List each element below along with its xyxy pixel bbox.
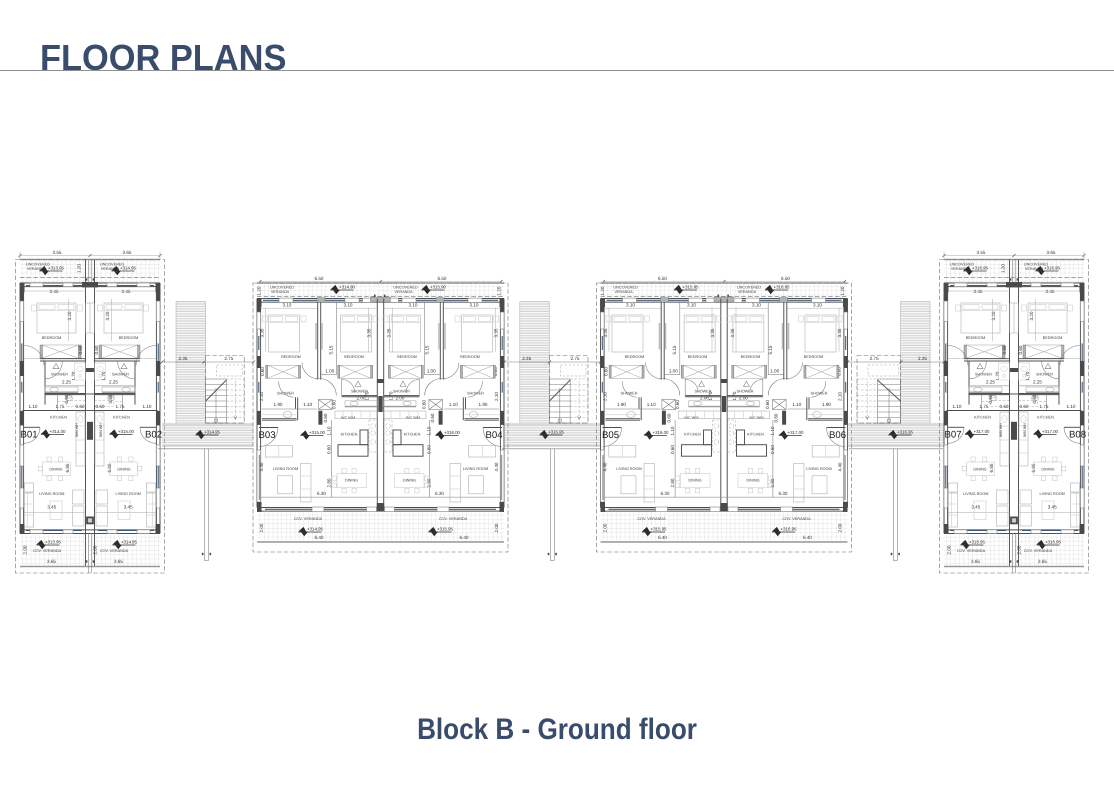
svg-text:2.75: 2.75: [224, 356, 233, 361]
svg-text:3.10: 3.10: [626, 303, 635, 308]
svg-text:COV. VERANDA: COV. VERANDA: [439, 517, 468, 521]
svg-text:3.45: 3.45: [974, 289, 983, 294]
svg-text:+315.00: +315.00: [118, 429, 135, 434]
svg-text:0.60: 0.60: [675, 400, 680, 409]
svg-text:3.35: 3.35: [387, 328, 392, 337]
svg-text:BEDROOM: BEDROOM: [1043, 336, 1063, 340]
svg-text:2.00: 2.00: [947, 545, 952, 554]
svg-text:+316.95: +316.95: [897, 430, 914, 435]
svg-text:1.00: 1.00: [427, 369, 436, 374]
svg-text:3.10: 3.10: [283, 303, 292, 308]
svg-text:1.20: 1.20: [257, 286, 262, 295]
svg-text:B06: B06: [829, 430, 846, 441]
svg-text:5.15: 5.15: [672, 345, 677, 354]
svg-text:3.65: 3.65: [1047, 250, 1056, 255]
svg-text:3.35: 3.35: [730, 328, 735, 337]
svg-text:0.60: 0.60: [430, 413, 435, 422]
svg-text:WM WH: WM WH: [1023, 423, 1027, 437]
svg-text:6.40: 6.40: [315, 535, 324, 540]
svg-text:0.60: 0.60: [427, 445, 432, 454]
svg-text:+314.95: +314.95: [204, 430, 221, 435]
svg-text:+314.95: +314.95: [120, 266, 137, 271]
svg-text:1.20: 1.20: [840, 286, 845, 295]
svg-text:3.65: 3.65: [1038, 559, 1047, 564]
svg-text:2.10: 2.10: [494, 392, 499, 401]
svg-text:1.90: 1.90: [479, 402, 488, 407]
svg-text:COV. VERANDA: COV. VERANDA: [294, 517, 323, 521]
svg-text:SHOWER: SHOWER: [810, 392, 827, 396]
svg-text:+314.00: +314.00: [50, 429, 67, 434]
svg-text:DINING: DINING: [746, 479, 759, 483]
svg-text:6.85: 6.85: [989, 463, 994, 472]
svg-text:0.60: 0.60: [64, 394, 69, 403]
svg-text:0.60: 0.60: [327, 445, 332, 454]
svg-text:DINING: DINING: [688, 479, 701, 483]
svg-text:+315.00: +315.00: [309, 430, 326, 435]
svg-text:LIVING ROOM: LIVING ROOM: [273, 467, 298, 471]
svg-text:0.60: 0.60: [332, 400, 337, 409]
svg-text:0.60: 0.60: [108, 394, 113, 403]
svg-text:2.10: 2.10: [838, 392, 843, 401]
svg-text:BEDROOM: BEDROOM: [688, 355, 708, 359]
svg-text:2.35: 2.35: [179, 356, 188, 361]
svg-text:+315.90: +315.90: [430, 285, 447, 290]
svg-text:2.35: 2.35: [522, 356, 531, 361]
svg-text:+317.00: +317.00: [1042, 429, 1059, 434]
svg-text:+317.00: +317.00: [788, 430, 805, 435]
svg-text:3.20: 3.20: [991, 311, 996, 320]
svg-text:B08: B08: [1069, 430, 1086, 441]
svg-text:6.40: 6.40: [658, 535, 667, 540]
svg-text:0.60: 0.60: [667, 413, 672, 422]
svg-text:4.40: 4.40: [838, 462, 843, 471]
svg-text:1.00: 1.00: [325, 369, 334, 374]
svg-text:BEDROOM: BEDROOM: [741, 355, 761, 359]
svg-text:DINING: DINING: [403, 479, 416, 483]
svg-text:6.30: 6.30: [661, 491, 670, 496]
svg-text:3.65: 3.65: [123, 250, 132, 255]
svg-text:3.65: 3.65: [971, 559, 980, 564]
svg-text:1.70: 1.70: [995, 371, 1000, 380]
svg-text:1.70: 1.70: [71, 371, 76, 380]
svg-text:1.00: 1.00: [669, 369, 678, 374]
svg-text:WM WH: WM WH: [999, 423, 1003, 437]
svg-text:3.35: 3.35: [710, 328, 715, 337]
svg-text:KITCHEN: KITCHEN: [404, 433, 421, 437]
svg-text:BEDROOM: BEDROOM: [460, 355, 480, 359]
svg-text:B05: B05: [602, 430, 619, 441]
svg-text:KITCHEN: KITCHEN: [113, 416, 130, 420]
svg-text:0.60: 0.60: [78, 345, 83, 354]
svg-text:3.10: 3.10: [687, 303, 696, 308]
svg-text:LIVING ROOM: LIVING ROOM: [963, 492, 988, 496]
svg-text:3.10: 3.10: [344, 303, 353, 308]
svg-text:BEDROOM: BEDROOM: [804, 355, 824, 359]
svg-text:0.60: 0.60: [422, 400, 427, 409]
svg-text:3.20: 3.20: [67, 311, 72, 320]
svg-text:+316.95: +316.95: [774, 285, 791, 290]
svg-text:6.50: 6.50: [438, 276, 447, 281]
svg-text:+316.00: +316.00: [653, 430, 670, 435]
svg-text:0.60: 0.60: [1000, 404, 1009, 409]
svg-text:B03: B03: [258, 430, 275, 441]
svg-text:COV. VERANDA: COV. VERANDA: [957, 549, 986, 553]
svg-text:2.75: 2.75: [870, 356, 879, 361]
svg-text:VERANDA: VERANDA: [738, 290, 757, 294]
svg-text:0.60: 0.60: [76, 404, 85, 409]
svg-text:SHOWER: SHOWER: [112, 373, 129, 377]
svg-text:UNCOVERED: UNCOVERED: [393, 286, 418, 290]
svg-text:1.10: 1.10: [770, 426, 775, 435]
svg-text:2.80: 2.80: [327, 478, 332, 487]
svg-text:3.35: 3.35: [603, 328, 608, 337]
svg-text:+316.00: +316.00: [444, 430, 461, 435]
svg-text:2.25: 2.25: [986, 380, 995, 385]
svg-text:1.10: 1.10: [1067, 404, 1076, 409]
svg-text:4.40: 4.40: [259, 462, 264, 471]
svg-text:VERANDA: VERANDA: [614, 290, 633, 294]
svg-text:+313.95: +313.95: [45, 540, 62, 545]
svg-text:3.45: 3.45: [124, 505, 133, 510]
svg-text:0.60: 0.60: [260, 367, 265, 376]
svg-text:UNCOVERED: UNCOVERED: [613, 286, 638, 290]
svg-text:6.30: 6.30: [779, 491, 788, 496]
svg-text:KITCHEN: KITCHEN: [974, 416, 991, 420]
svg-text:0.60: 0.60: [770, 445, 775, 454]
svg-text:3.65: 3.65: [47, 559, 56, 564]
svg-text:0.60: 0.60: [765, 400, 770, 409]
svg-text:2.00: 2.00: [23, 545, 28, 554]
svg-text:BEDROOM: BEDROOM: [397, 355, 417, 359]
svg-text:0.60: 0.60: [94, 345, 99, 354]
svg-text:5.15: 5.15: [329, 345, 334, 354]
svg-text:DINING: DINING: [117, 468, 130, 472]
svg-text:+314.95: +314.95: [307, 527, 324, 532]
svg-text:3.45: 3.45: [971, 505, 980, 510]
svg-text:1.10: 1.10: [449, 402, 458, 407]
svg-text:VERANDA: VERANDA: [394, 290, 413, 294]
svg-text:0.60: 0.60: [604, 367, 609, 376]
svg-text:LIVING ROOM: LIVING ROOM: [806, 467, 831, 471]
svg-text:+317.00: +317.00: [974, 429, 991, 434]
svg-text:1.75: 1.75: [980, 404, 989, 409]
svg-text:1.90: 1.90: [274, 402, 283, 407]
svg-text:3.55: 3.55: [977, 250, 986, 255]
svg-text:0.60: 0.60: [1018, 345, 1023, 354]
svg-text:3.55: 3.55: [53, 250, 62, 255]
svg-text:KITCHEN: KITCHEN: [684, 433, 701, 437]
svg-text:DINING: DINING: [1041, 468, 1054, 472]
svg-text:1.10: 1.10: [327, 426, 332, 435]
svg-text:+314.90: +314.90: [339, 285, 356, 290]
svg-text:4.40: 4.40: [494, 462, 499, 471]
svg-text:1.00: 1.00: [770, 369, 779, 374]
svg-text:2.75: 2.75: [571, 356, 580, 361]
svg-text:DINING: DINING: [49, 468, 62, 472]
svg-text:UNCOVERED: UNCOVERED: [270, 286, 295, 290]
svg-text:1.10: 1.10: [792, 402, 801, 407]
svg-text:3.45: 3.45: [50, 289, 59, 294]
svg-text:1.20: 1.20: [600, 286, 605, 295]
svg-text:DINING: DINING: [973, 468, 986, 472]
svg-text:2.25: 2.25: [1033, 380, 1042, 385]
svg-text:SHOWER: SHOWER: [736, 389, 753, 393]
svg-text:1.20: 1.20: [1001, 264, 1006, 273]
svg-text:BEDROOM: BEDROOM: [42, 336, 62, 340]
svg-text:2.00: 2.00: [603, 523, 608, 532]
svg-text:4.40: 4.40: [603, 462, 608, 471]
svg-text:2.35: 2.35: [918, 356, 927, 361]
svg-text:VERANDA: VERANDA: [271, 290, 290, 294]
svg-text:+316.95: +316.95: [1045, 540, 1062, 545]
svg-text:COV. VERANDA: COV. VERANDA: [33, 549, 62, 553]
svg-text:0.60: 0.60: [323, 413, 328, 422]
svg-text:3.65: 3.65: [114, 559, 123, 564]
svg-text:+313.95: +313.95: [48, 266, 65, 271]
svg-text:BEDROOM: BEDROOM: [281, 355, 301, 359]
svg-text:3.35: 3.35: [367, 328, 372, 337]
svg-text:3.10: 3.10: [470, 303, 479, 308]
svg-text:0.60: 0.60: [1032, 394, 1037, 403]
svg-text:+315.95: +315.95: [651, 527, 668, 532]
svg-text:COV. VERANDA: COV. VERANDA: [1024, 549, 1053, 553]
svg-text:2.00: 2.00: [1017, 545, 1022, 554]
svg-text:3.45: 3.45: [47, 505, 56, 510]
svg-text:1.10: 1.10: [303, 402, 312, 407]
svg-text:SHOWER: SHOWER: [393, 389, 410, 393]
svg-text:3.10: 3.10: [409, 303, 418, 308]
svg-text:1.75: 1.75: [116, 404, 125, 409]
svg-text:0.60: 0.60: [988, 394, 993, 403]
svg-text:3.35: 3.35: [494, 328, 499, 337]
svg-text:WM WH: WM WH: [75, 423, 79, 437]
svg-text:3.45: 3.45: [1046, 289, 1055, 294]
svg-text:LIVING ROOM: LIVING ROOM: [39, 492, 64, 496]
svg-text:LIVING ROOM: LIVING ROOM: [463, 467, 488, 471]
svg-text:6.85: 6.85: [65, 463, 70, 472]
svg-text:5.15: 5.15: [768, 345, 773, 354]
svg-text:6.50: 6.50: [315, 276, 324, 281]
svg-text:1.20: 1.20: [497, 286, 502, 295]
svg-text:BEDROOM: BEDROOM: [966, 336, 986, 340]
svg-text:2.00: 2.00: [838, 523, 843, 532]
svg-text:3.35: 3.35: [837, 328, 842, 337]
svg-text:LIVING ROOM: LIVING ROOM: [1040, 492, 1065, 496]
svg-text:LIVING ROOM: LIVING ROOM: [116, 492, 141, 496]
svg-text:LIVING ROOM: LIVING ROOM: [616, 467, 641, 471]
svg-text:KITCHEN: KITCHEN: [50, 416, 67, 420]
svg-text:KITCHEN: KITCHEN: [747, 433, 764, 437]
svg-text:KITCHEN: KITCHEN: [341, 433, 358, 437]
svg-text:+315.95: +315.95: [548, 430, 565, 435]
svg-text:UNCOVERED: UNCOVERED: [950, 263, 975, 267]
svg-text:1.10: 1.10: [143, 404, 152, 409]
svg-text:6.30: 6.30: [435, 491, 444, 496]
svg-text:1.75: 1.75: [1040, 404, 1049, 409]
svg-text:0.60: 0.60: [670, 445, 675, 454]
svg-text:5.15: 5.15: [425, 345, 430, 354]
svg-text:BEDROOM: BEDROOM: [625, 355, 645, 359]
svg-text:WM WH: WM WH: [99, 423, 103, 437]
svg-text:B02: B02: [145, 430, 162, 441]
svg-text:SHOWER: SHOWER: [975, 373, 992, 377]
svg-text:2.10: 2.10: [259, 392, 264, 401]
svg-text:1.20: 1.20: [77, 264, 82, 273]
svg-text:BEDROOM: BEDROOM: [344, 355, 364, 359]
svg-text:SHOWER: SHOWER: [467, 392, 484, 396]
svg-text:BEDROOM: BEDROOM: [119, 336, 139, 340]
svg-text:3.45: 3.45: [122, 289, 131, 294]
svg-text:1.90: 1.90: [822, 402, 831, 407]
svg-text:UNCOVERED: UNCOVERED: [26, 263, 51, 267]
svg-text:3.45: 3.45: [1048, 505, 1057, 510]
svg-text:1.10: 1.10: [647, 402, 656, 407]
svg-text:0.60: 0.60: [1020, 404, 1029, 409]
svg-text:6.30: 6.30: [317, 491, 326, 496]
svg-text:0.60: 0.60: [96, 404, 105, 409]
svg-text:UNCOVERED: UNCOVERED: [737, 286, 762, 290]
svg-text:COV. VERANDA: COV. VERANDA: [637, 517, 666, 521]
svg-text:3.10: 3.10: [813, 303, 822, 308]
svg-text:1.10: 1.10: [427, 426, 432, 435]
svg-text:B04: B04: [485, 430, 503, 441]
svg-text:6.50: 6.50: [658, 276, 667, 281]
svg-text:DINING: DINING: [345, 479, 358, 483]
svg-text:3.10: 3.10: [752, 303, 761, 308]
svg-text:SHOWER: SHOWER: [51, 373, 68, 377]
svg-text:1.90: 1.90: [617, 402, 626, 407]
svg-text:COV. VERANDA: COV. VERANDA: [782, 517, 811, 521]
svg-text:1.10: 1.10: [29, 404, 38, 409]
svg-text:2.10: 2.10: [602, 392, 607, 401]
svg-text:3.35: 3.35: [260, 328, 265, 337]
svg-text:1.10: 1.10: [953, 404, 962, 409]
svg-text:2.00: 2.00: [259, 523, 264, 532]
svg-text:6.40: 6.40: [460, 535, 469, 540]
svg-text:6.50: 6.50: [781, 276, 790, 281]
svg-text:COV. VERANDA: COV. VERANDA: [100, 549, 129, 553]
svg-text:2.00: 2.00: [93, 545, 98, 554]
svg-text:0.60: 0.60: [774, 413, 779, 422]
svg-text:2.80: 2.80: [670, 478, 675, 487]
svg-text:6.40: 6.40: [803, 535, 812, 540]
svg-text:+316.95: +316.95: [969, 540, 986, 545]
svg-text:2.00: 2.00: [494, 523, 499, 532]
svg-text:2.25: 2.25: [62, 380, 71, 385]
svg-text:+316.95: +316.95: [781, 527, 798, 532]
svg-text:+315.95: +315.95: [683, 285, 700, 290]
svg-text:+314.95: +314.95: [121, 540, 138, 545]
svg-text:+315.95: +315.95: [437, 527, 454, 532]
svg-text:3.20: 3.20: [1029, 311, 1034, 320]
svg-text:KITCHEN: KITCHEN: [1037, 416, 1054, 420]
svg-text:1.10: 1.10: [670, 426, 675, 435]
svg-text:1.75: 1.75: [56, 404, 65, 409]
svg-text:+316.95: +316.95: [972, 266, 989, 271]
svg-text:0.60: 0.60: [1002, 345, 1007, 354]
svg-text:+316.95: +316.95: [1044, 266, 1061, 271]
svg-text:2.25: 2.25: [109, 380, 118, 385]
svg-text:3.20: 3.20: [105, 311, 110, 320]
svg-text:SHOWER: SHOWER: [1036, 373, 1053, 377]
